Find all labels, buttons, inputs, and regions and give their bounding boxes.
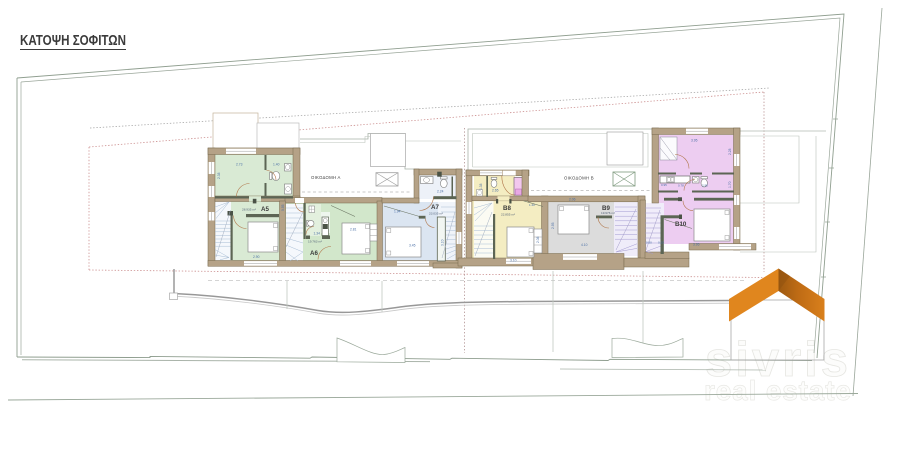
- svg-text:2.38: 2.38: [217, 172, 221, 179]
- svg-text:1.40: 1.40: [273, 163, 280, 167]
- svg-text:1.70: 1.70: [728, 181, 732, 188]
- svg-text:1.38: 1.38: [479, 183, 483, 190]
- svg-text:3.10: 3.10: [510, 259, 517, 263]
- svg-text:2.08: 2.08: [536, 236, 540, 243]
- svg-text:2.28: 2.28: [728, 148, 732, 155]
- svg-text:2.73: 2.73: [236, 163, 243, 167]
- svg-text:2.95: 2.95: [551, 222, 555, 229]
- svg-text:2.90: 2.90: [702, 184, 708, 188]
- svg-text:23.035 m²: 23.035 m²: [429, 212, 443, 216]
- svg-text:4.10: 4.10: [581, 243, 588, 247]
- svg-text:ΟΙΚΟΔΟΜΗ Α: ΟΙΚΟΔΟΜΗ Α: [311, 175, 341, 180]
- svg-text:3.95: 3.95: [691, 139, 698, 143]
- svg-text:0.10: 0.10: [658, 241, 664, 245]
- svg-text:2.65: 2.65: [492, 189, 499, 193]
- svg-text:real estate: real estate: [704, 375, 851, 406]
- svg-text:0.95: 0.95: [281, 204, 285, 211]
- svg-text:ΟΙΚΟΔΟΜΗ Β: ΟΙΚΟΔΟΜΗ Β: [564, 176, 594, 181]
- svg-text:0.78: 0.78: [678, 184, 684, 188]
- svg-text:0.90: 0.90: [646, 241, 652, 245]
- svg-text:A7: A7: [431, 204, 439, 211]
- svg-text:ΚΑΤΟΨΗ ΣΟΦΙΤΩΝ: ΚΑΤΟΨΗ ΣΟΦΙΤΩΝ: [20, 33, 126, 49]
- svg-text:B10: B10: [675, 221, 687, 228]
- svg-text:1.94: 1.94: [394, 210, 401, 214]
- svg-text:0.95: 0.95: [661, 183, 667, 187]
- svg-text:1.40: 1.40: [529, 203, 535, 207]
- svg-text:2.81: 2.81: [350, 228, 357, 232]
- svg-text:3.95: 3.95: [693, 243, 700, 247]
- svg-text:B8: B8: [503, 205, 511, 212]
- svg-text:1.34: 1.34: [314, 232, 321, 236]
- svg-text:2.06: 2.06: [569, 198, 576, 202]
- svg-text:19.763 m²: 19.763 m²: [308, 240, 322, 244]
- svg-text:2.24: 2.24: [437, 190, 444, 194]
- svg-text:A5: A5: [261, 206, 269, 213]
- svg-text:28.935 m²: 28.935 m²: [242, 208, 256, 212]
- svg-text:A6: A6: [310, 250, 318, 257]
- svg-text:19.976 m²: 19.976 m²: [601, 211, 615, 215]
- svg-text:3.10: 3.10: [441, 239, 445, 246]
- svg-text:22.855 m²: 22.855 m²: [501, 213, 515, 217]
- svg-text:2.90: 2.90: [253, 255, 260, 259]
- svg-text:3.45: 3.45: [409, 244, 416, 248]
